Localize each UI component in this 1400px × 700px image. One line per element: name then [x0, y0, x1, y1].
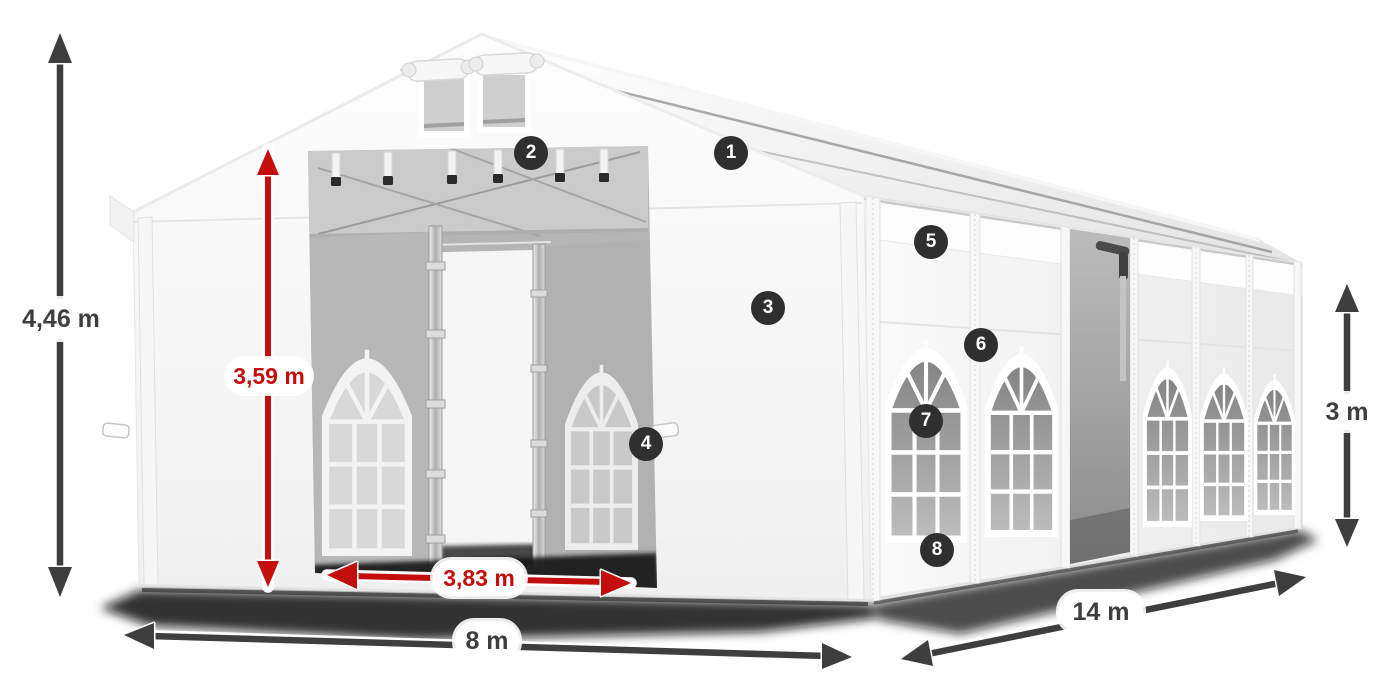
tent-illustration [0, 0, 1400, 700]
entrance-height-label: 3,59 m [227, 359, 311, 393]
callout-marker-8: 8 [920, 533, 954, 567]
callout-marker-1: 1 [714, 136, 748, 170]
callout-marker-7: 7 [909, 404, 943, 438]
entrance-opening [308, 146, 660, 592]
callout-marker-2: 2 [514, 136, 548, 170]
front-width-label: 8 m [455, 621, 519, 661]
entrance-width-label: 3,83 m [433, 560, 525, 596]
wall-height-label: 3 m [1312, 394, 1382, 430]
callout-marker-4: 4 [629, 427, 663, 461]
side-length-label: 14 m [1059, 592, 1143, 632]
callout-marker-6: 6 [964, 328, 998, 362]
tent-product-diagram: 4,46 m 3,59 m 3,83 m 8 m 14 m 3 m 1 2 3 … [0, 0, 1400, 700]
total-height-label: 4,46 m [11, 299, 111, 339]
side-door-opening [1070, 229, 1130, 564]
callout-marker-3: 3 [751, 291, 785, 325]
callout-marker-5: 5 [914, 225, 948, 259]
